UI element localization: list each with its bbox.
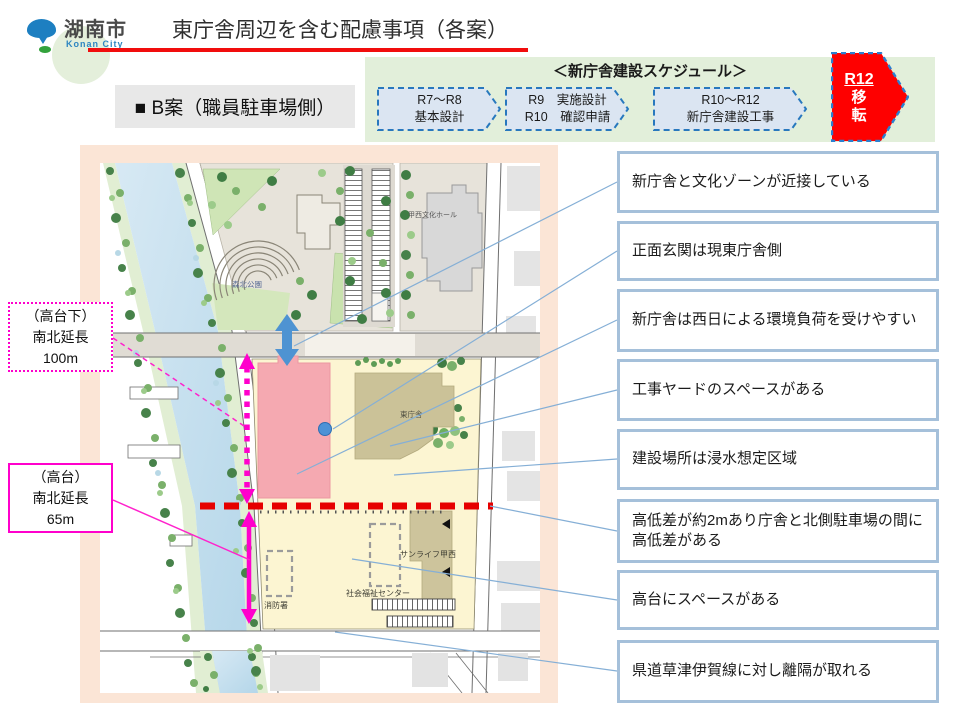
schedule-step-3: R10～R12 新庁舎建設工事: [653, 87, 808, 131]
callout-text: 新庁舎は西日による環境負荷を受けやすい: [632, 310, 917, 330]
culture-hall-zone: [400, 163, 487, 331]
callout-text: 工事ヤードのスペースがある: [632, 380, 825, 400]
title-underline: [88, 48, 528, 52]
callout-main-entrance: 正面玄関は現東庁舎側: [617, 221, 939, 281]
label-line: 100m: [43, 348, 78, 369]
sunlife-label: サンライフ甲西: [400, 550, 456, 559]
callout-text: 高台にスペースがある: [632, 590, 780, 610]
step2-line1: R9 実施設計: [528, 92, 606, 109]
callout-prefectural-road: 県道草津伊賀線に対し離隔が取れる: [617, 640, 939, 703]
label-line: （高台）: [33, 467, 89, 488]
east-building-label: 東庁舎: [400, 409, 423, 419]
slide: 湖南市 Konan City 東庁舎周辺を含む配慮事項（各案） ■ B案（職員駐…: [0, 0, 960, 720]
label-plateau: （高台） 南北延長 65m: [8, 463, 113, 533]
park-label: 森北公園: [232, 279, 262, 289]
page-title: 東庁舎周辺を含む配慮事項（各案）: [140, 14, 540, 44]
step1-line2: 基本設計: [414, 109, 464, 126]
north-parking-lot: [343, 165, 395, 327]
callout-text: 高低差が約2mあり庁舎と北側駐車場の間に高低差がある: [632, 511, 924, 552]
schedule-step-1: R7～R8 基本設計: [377, 87, 502, 131]
step1-line1: R7～R8: [417, 92, 461, 109]
final-year: R12: [844, 70, 873, 89]
callout-elevation-gap: 高低差が約2mあり庁舎と北側駐車場の間に高低差がある: [617, 499, 939, 563]
site-map-panel: 森北公園 甲西文化ホール 東庁舎 サンライフ甲西 社会福祉センター 消防署: [80, 145, 558, 703]
callout-flood-zone: 建設場所は浸水想定区域: [617, 429, 939, 490]
step3-line1: R10～R12: [701, 92, 759, 109]
callout-plateau-space: 高台にスペースがある: [617, 570, 939, 630]
final-label-char2: 転: [851, 107, 866, 124]
callout-text: 正面玄関は現東庁舎側: [632, 241, 782, 261]
label-line: （高台下）: [26, 306, 96, 327]
city-logo-icon: [27, 19, 56, 38]
plan-b-label: ■ B案（職員駐車場側）: [115, 85, 355, 128]
callout-text: 建設場所は浸水想定区域: [632, 449, 797, 469]
step3-line2: 新庁舎建設工事: [687, 109, 775, 126]
culture-hall-label: 甲西文化ホール: [408, 210, 457, 219]
welfare-center-label: 社会福祉センター: [346, 588, 410, 598]
schedule-final-arrow: R12 移 転: [831, 52, 909, 142]
main-entrance-marker: [319, 423, 332, 436]
final-label-char1: 移: [851, 89, 866, 106]
label-line: 南北延長: [33, 327, 89, 348]
label-line: 南北延長: [33, 488, 89, 509]
callout-construction-yard: 工事ヤードのスペースがある: [617, 359, 939, 421]
step2-line2: R10 確認申請: [525, 109, 610, 126]
city-logo-leaf-icon: [39, 46, 51, 53]
north-road: [100, 333, 540, 357]
callout-text: 新庁舎と文化ゾーンが近接している: [632, 172, 871, 192]
label-below-plateau: （高台下） 南北延長 100m: [8, 302, 113, 372]
site-map: 森北公園 甲西文化ホール 東庁舎 サンライフ甲西 社会福祉センター 消防署: [100, 163, 540, 693]
callout-culture-zone: 新庁舎と文化ゾーンが近接している: [617, 151, 939, 213]
site-map-drawing: 森北公園 甲西文化ホール 東庁舎 サンライフ甲西 社会福祉センター 消防署: [100, 163, 540, 693]
callout-text: 県道草津伊賀線に対し離隔が取れる: [632, 661, 872, 681]
label-line: 65m: [47, 509, 74, 530]
schedule-step-2: R9 実施設計 R10 確認申請: [505, 87, 630, 131]
fire-station-label: 消防署: [264, 600, 288, 610]
callout-west-sun: 新庁舎は西日による環境負荷を受けやすい: [617, 289, 939, 352]
city-name: 湖南市: [64, 13, 127, 42]
